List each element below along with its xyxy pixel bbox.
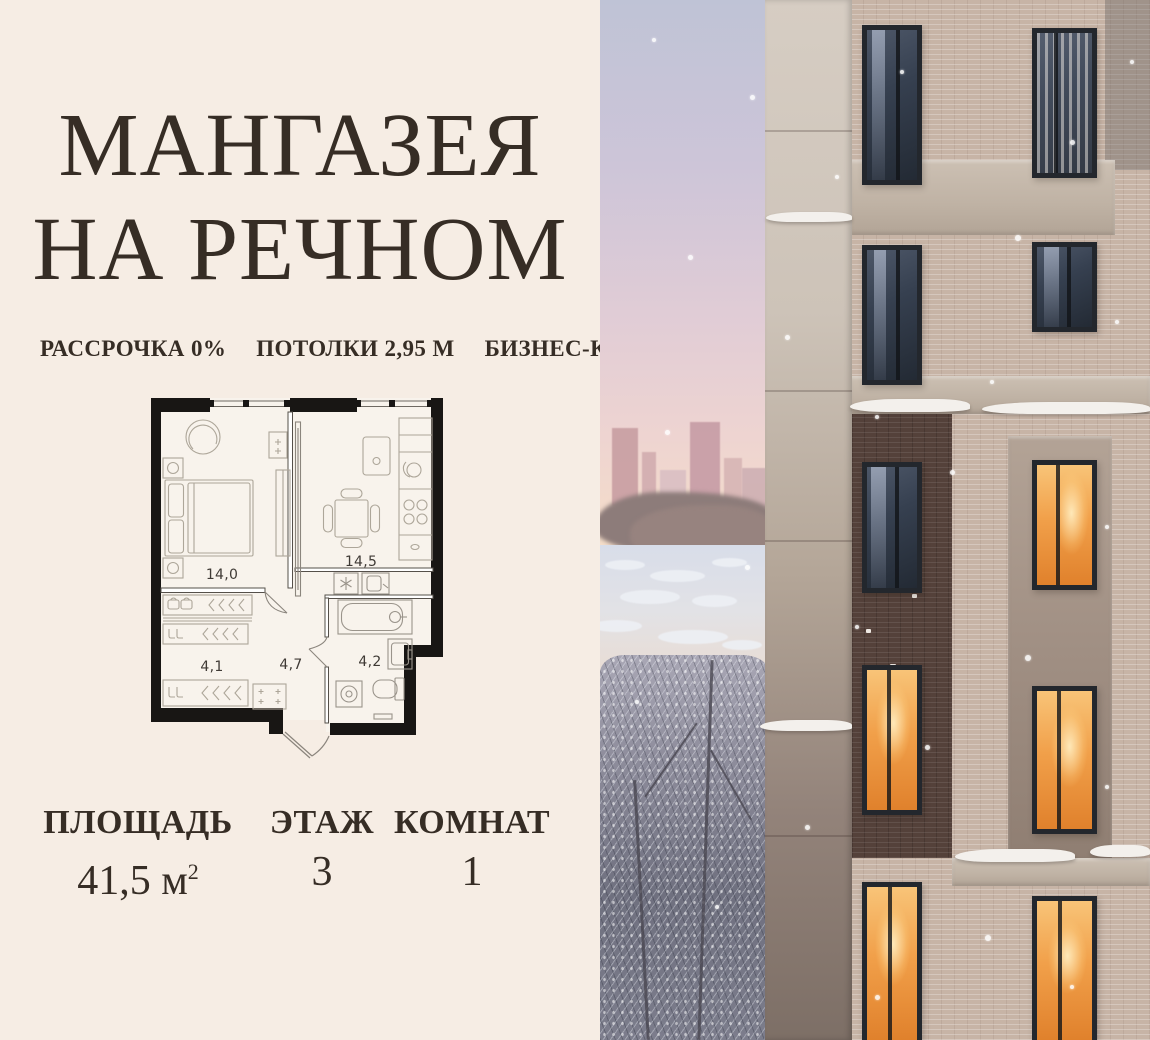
tree-branch	[710, 750, 752, 820]
snowflake	[950, 470, 955, 475]
window-dark	[862, 245, 922, 385]
snowflake	[665, 430, 670, 435]
tree-branch	[644, 723, 697, 798]
ice-floe	[722, 640, 762, 650]
snowflake	[875, 995, 880, 1000]
window-reflection	[871, 467, 886, 588]
stat-floor-value: 3	[252, 846, 392, 898]
room-label-bathroom: 4,2	[358, 654, 381, 670]
entry-door	[283, 732, 329, 758]
snow-ledge	[955, 849, 1075, 862]
snowflake	[835, 175, 839, 179]
window-lit	[1032, 460, 1097, 590]
panel-seam	[765, 540, 852, 542]
brick-shadow-strip	[1105, 0, 1150, 170]
ice-floe	[650, 570, 705, 582]
snowflake	[855, 625, 859, 629]
stat-floor: ЭТАЖ 3	[252, 802, 392, 898]
stat-area-label: ПЛОЩАДЬ	[28, 802, 248, 844]
snowflake	[1070, 140, 1075, 145]
snowflake	[750, 95, 755, 100]
window-dark	[862, 25, 922, 185]
floor-plan: 14,0 14,5 4,1 4,7 4,2	[148, 392, 448, 792]
title-line-1: МАНГАЗЕЯ	[58, 96, 541, 195]
window-reflection	[874, 250, 886, 380]
window-reflection	[1044, 247, 1059, 327]
window-mullion	[1058, 901, 1062, 1040]
snow-speck	[866, 629, 871, 633]
ice-floe	[620, 590, 680, 604]
window-mullion	[1057, 691, 1061, 829]
window-lit	[1032, 686, 1097, 834]
window-dark	[862, 462, 922, 593]
stat-rooms-value: 1	[392, 846, 552, 898]
window-lit	[1032, 896, 1097, 1040]
facade-panel-band	[952, 858, 1150, 886]
window-dark	[1032, 28, 1097, 178]
snow-ledge	[1090, 845, 1150, 857]
panel-seam	[765, 835, 852, 837]
snowflake	[1015, 235, 1021, 241]
feature-ceilings: ПОТОЛКИ 2,95 М	[256, 336, 454, 362]
snow-ledge	[982, 402, 1150, 414]
window-glow	[1048, 918, 1087, 994]
window-mullion	[1054, 33, 1058, 173]
window-mullion	[887, 670, 891, 810]
window-curtain	[1037, 33, 1092, 173]
title-line-2: НА РЕЧНОМ	[32, 200, 567, 299]
window-mullion	[1056, 465, 1060, 585]
snowflake	[925, 745, 930, 750]
stat-area-number: 41,5 м	[77, 858, 188, 904]
window-mullion	[895, 467, 899, 588]
snow-ledge	[760, 720, 852, 731]
room-label-hallway: 4,7	[279, 657, 302, 673]
snowflake	[1025, 655, 1031, 661]
ice-floe	[712, 558, 747, 567]
tree-trunk	[633, 780, 649, 1040]
snowflake	[985, 935, 991, 941]
snow-ledge	[766, 212, 852, 222]
snowflake	[652, 38, 656, 42]
tree-trunk	[697, 660, 713, 1040]
snowflake	[1105, 785, 1109, 789]
ice-floe	[605, 560, 645, 570]
snowflake	[875, 415, 879, 419]
window-mullion	[888, 887, 892, 1040]
room-label-kitchen: 14,5	[345, 554, 377, 570]
ice-floe	[692, 595, 737, 607]
stat-area-sup: 2	[188, 859, 199, 884]
building-photo	[600, 0, 1150, 1040]
snowflake	[1115, 320, 1119, 324]
window-glow	[875, 902, 911, 986]
window-mullion	[896, 250, 900, 380]
snow-speck	[912, 594, 917, 598]
snowflake	[990, 380, 994, 384]
stat-rooms: КОМНАТ 1	[392, 802, 552, 898]
snowflake	[1070, 985, 1074, 989]
snowflake	[1130, 60, 1134, 64]
ice-floe	[658, 630, 728, 644]
panel-seam	[765, 390, 852, 392]
window-dark	[1032, 242, 1097, 332]
window-lit	[862, 882, 922, 1040]
stats-row: ПЛОЩАДЬ 41,5 м2 ЭТАЖ 3 КОМНАТ 1	[0, 802, 600, 912]
feature-installment: РАССРОЧКА 0%	[40, 336, 226, 362]
facade-pilaster	[765, 0, 852, 1040]
ice-floe	[600, 620, 642, 632]
window-mullion	[1067, 247, 1071, 327]
info-panel: МАНГАЗЕЯ НА РЕЧНОМ РАССРОЧКА 0% ПОТОЛКИ …	[0, 0, 600, 1040]
snow-ledge	[850, 399, 970, 412]
snowflake	[1105, 525, 1109, 529]
snowflake	[635, 700, 639, 704]
floor-plan-drawing: 14,0 14,5 4,1 4,7 4,2	[148, 392, 448, 792]
stat-floor-label: ЭТАЖ	[252, 802, 392, 844]
stat-area-value: 41,5 м2	[28, 846, 248, 907]
window-mullion	[896, 30, 900, 180]
snowflake	[745, 565, 750, 570]
room-label-bedroom: 14,0	[206, 567, 238, 583]
snowy-trees	[600, 655, 772, 1040]
ad-banner: МАНГАЗЕЯ НА РЕЧНОМ РАССРОЧКА 0% ПОТОЛКИ …	[0, 0, 1150, 1040]
window-lit	[862, 665, 922, 815]
stat-rooms-label: КОМНАТ	[392, 802, 552, 844]
features-row: РАССРОЧКА 0% ПОТОЛКИ 2,95 М БИЗНЕС-КЛАСС	[40, 336, 600, 362]
room-label-wardrobe: 4,1	[200, 659, 223, 675]
project-title: МАНГАЗЕЯ НА РЕЧНОМ	[0, 94, 600, 303]
snowflake	[715, 905, 719, 909]
stat-area: ПЛОЩАДЬ 41,5 м2	[28, 802, 248, 907]
window-glow	[876, 681, 911, 765]
window-reflection	[872, 30, 885, 180]
snowflake	[805, 825, 810, 830]
snowflake	[900, 70, 904, 74]
snowflake	[785, 335, 790, 340]
snowflake	[688, 255, 693, 260]
panel-seam	[765, 130, 852, 132]
